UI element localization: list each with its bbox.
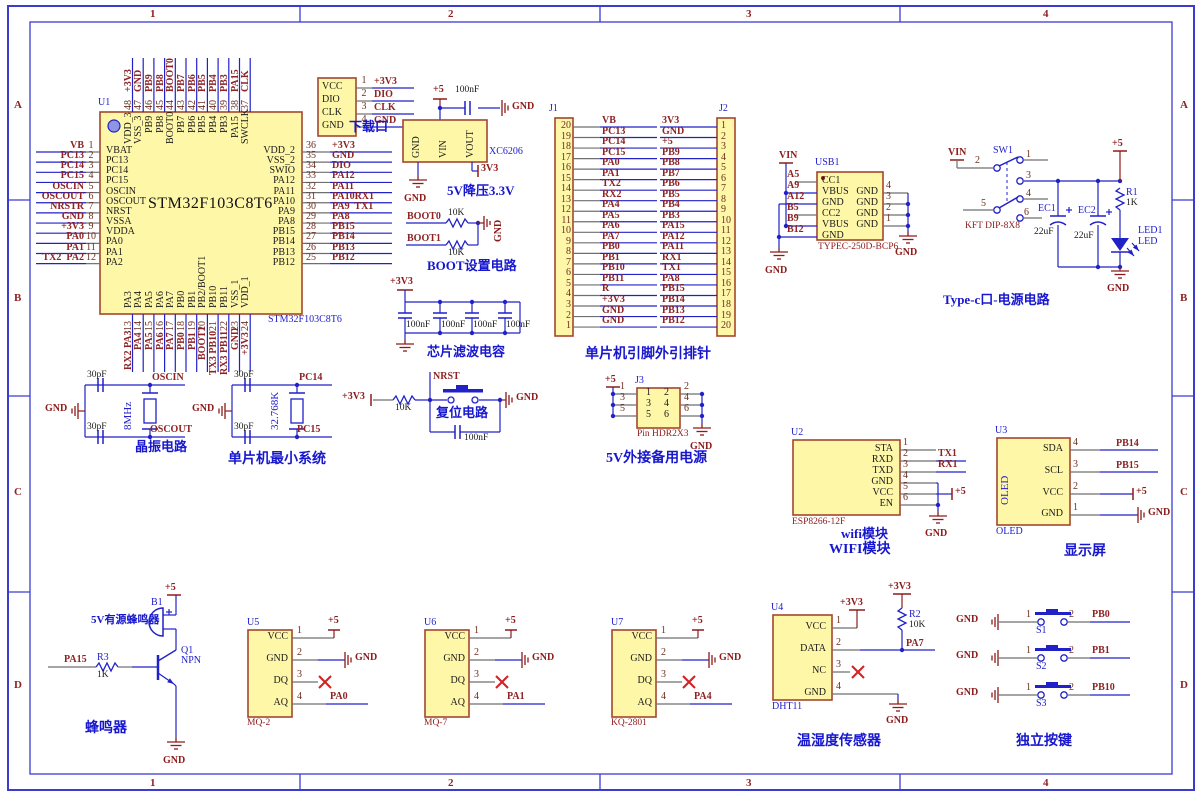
crystal-body xyxy=(144,399,156,423)
button-bar xyxy=(1035,648,1071,651)
caption-buzzer: 蜂鸣器 xyxy=(85,722,127,736)
resistor xyxy=(446,241,468,249)
usb-body xyxy=(817,172,883,240)
junction-dot xyxy=(503,331,507,335)
j3-body xyxy=(637,388,680,428)
junction-dot xyxy=(784,191,788,195)
button-bar xyxy=(456,385,468,389)
junction-dot xyxy=(470,300,474,304)
buzzer-comment: 5V有源蜂鸣器 xyxy=(91,615,159,626)
junction-dot xyxy=(498,398,502,402)
caption-filter-caps: 芯片滤波电容 xyxy=(427,345,505,358)
mcu-body xyxy=(100,112,302,314)
resistor xyxy=(96,663,118,671)
button-bar xyxy=(1046,682,1058,685)
caption-typec-power: Type-c口-电源电路 xyxy=(943,293,1050,306)
junction-dot xyxy=(611,414,615,418)
caption-display: 显示屏 xyxy=(1064,545,1106,559)
button-contact xyxy=(1061,655,1067,661)
switch-contact xyxy=(1017,178,1023,184)
junction-dot xyxy=(148,383,152,387)
button-contact xyxy=(1038,692,1044,698)
button-contact xyxy=(1038,619,1044,625)
junction-dot xyxy=(438,106,442,110)
junction-dot xyxy=(906,213,910,217)
oled-body xyxy=(997,438,1070,525)
caption-regulator: 5V降压3.3V xyxy=(447,184,515,197)
button-bar xyxy=(1035,612,1071,615)
wifi-body xyxy=(793,440,900,515)
resistor xyxy=(446,219,468,227)
junction-dot xyxy=(936,503,940,507)
polar-cap-plate xyxy=(1090,222,1106,225)
junction-dot xyxy=(503,300,507,304)
led-triangle xyxy=(1111,238,1129,251)
junction-dot xyxy=(438,300,442,304)
button-bar xyxy=(1035,685,1071,688)
wire xyxy=(999,157,1018,166)
button-bar xyxy=(1046,645,1058,648)
button-contact xyxy=(448,397,454,403)
junction-dot xyxy=(777,235,781,239)
crystal-body xyxy=(291,399,303,423)
j1-body xyxy=(555,118,573,336)
button-contact xyxy=(472,397,478,403)
usb-pin1-dot xyxy=(821,176,825,180)
caption-headers: 单片机引脚外引排针 xyxy=(585,348,711,362)
arrowhead xyxy=(167,678,174,684)
wire xyxy=(174,684,176,686)
schematic-graphics xyxy=(0,0,1202,797)
wire xyxy=(999,197,1018,208)
button-bar xyxy=(443,389,483,393)
caption-wifi-1: wifi模块 xyxy=(841,527,888,540)
regulator-body xyxy=(403,120,487,162)
schematic-sheet: 11223344AABBCCDDU1STM32F103C8T6STM32F103… xyxy=(0,0,1202,797)
junction-dot xyxy=(611,392,615,396)
j2-body xyxy=(717,118,735,336)
polar-cap-plate xyxy=(1050,222,1066,225)
junction-dot xyxy=(1096,265,1100,269)
switch-contact xyxy=(1017,215,1023,221)
junction-dot xyxy=(611,403,615,407)
junction-dot xyxy=(295,435,299,439)
caption-minimal-system: 单片机最小系统 xyxy=(228,453,326,467)
caption-dht-sensor: 温湿度传感器 xyxy=(797,735,881,749)
junction-dot xyxy=(906,202,910,206)
resistor xyxy=(393,396,415,404)
caption-reset-circuit: 复位电路 xyxy=(436,406,488,419)
button-contact xyxy=(1038,655,1044,661)
junction-dot xyxy=(784,224,788,228)
caption-boot-circuit: BOOT设置电路 xyxy=(427,259,517,272)
junction-dot xyxy=(906,224,910,228)
button-contact xyxy=(1061,692,1067,698)
button-bar xyxy=(1046,609,1058,612)
junction-dot xyxy=(438,331,442,335)
junction-dot xyxy=(295,383,299,387)
sensor-body xyxy=(425,630,469,717)
caption-wifi-2: WIFI模块 xyxy=(829,543,890,557)
resistor xyxy=(898,608,906,630)
wire xyxy=(158,650,176,661)
resistor xyxy=(1116,188,1124,210)
junction-dot xyxy=(470,331,474,335)
caption-download-port: 下载口 xyxy=(349,120,388,133)
dht-body xyxy=(773,615,832,700)
button-contact xyxy=(1061,619,1067,625)
caption-crystal: 晶振电路 xyxy=(135,440,187,453)
sensor-body xyxy=(612,630,656,717)
caption-keys: 独立按键 xyxy=(1016,735,1072,749)
caption-backup-power: 5V外接备用电源 xyxy=(606,452,707,466)
sensor-body xyxy=(248,630,292,717)
pin1-marker xyxy=(108,120,120,132)
